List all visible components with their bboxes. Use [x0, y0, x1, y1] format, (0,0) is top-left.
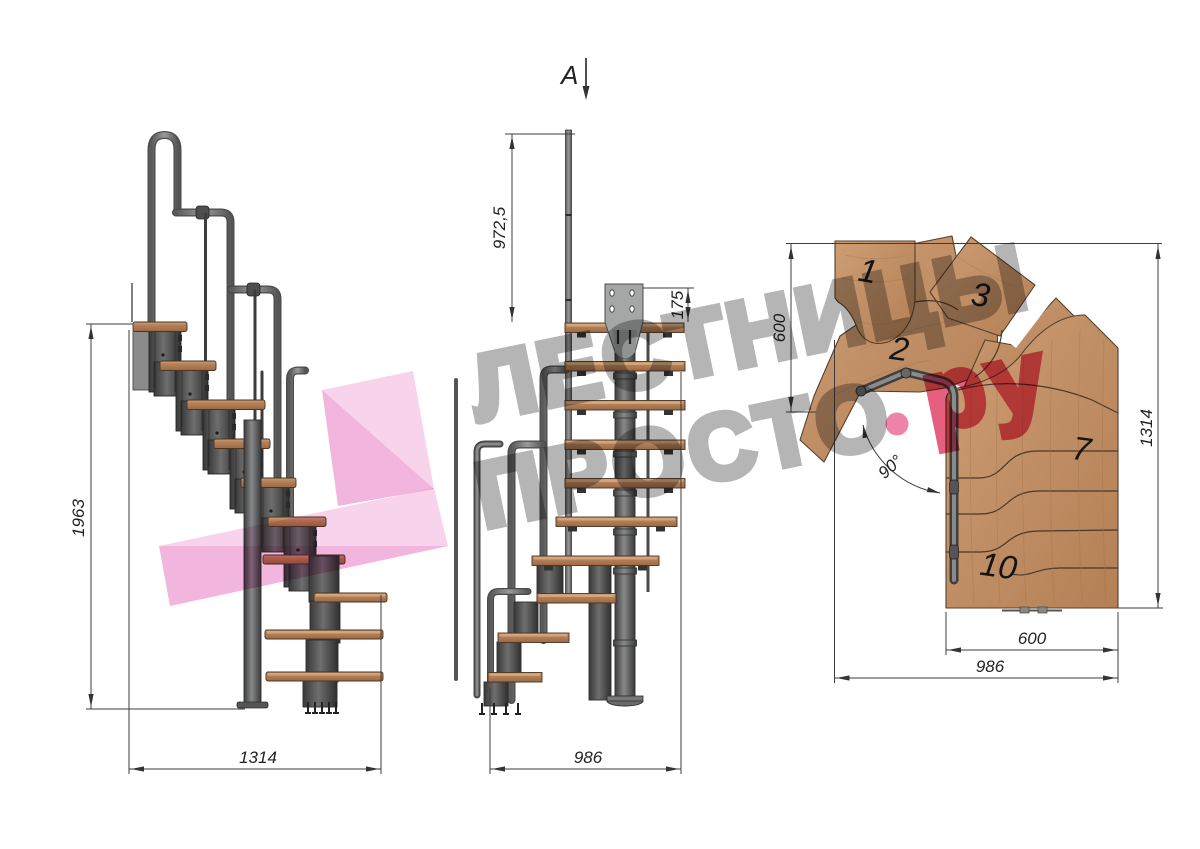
svg-text:986: 986: [574, 748, 603, 767]
svg-text:A: A: [559, 60, 578, 90]
svg-text:1314: 1314: [1137, 409, 1156, 447]
svg-text:986: 986: [976, 657, 1005, 676]
svg-text:600: 600: [1018, 629, 1047, 648]
svg-text:972,5: 972,5: [490, 206, 509, 249]
svg-text:1314: 1314: [239, 748, 277, 767]
svg-text:10: 10: [978, 545, 1020, 587]
svg-text:1963: 1963: [69, 499, 88, 537]
